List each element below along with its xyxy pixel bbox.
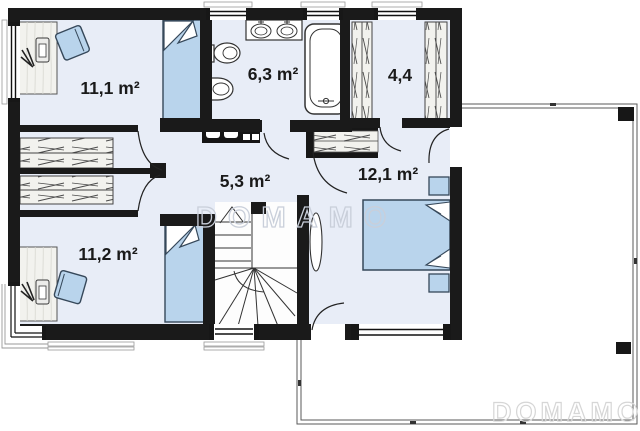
hall-wardrobe-lower xyxy=(20,176,113,204)
room-label-bottom-left: 11,2 m² xyxy=(78,244,138,264)
window-top-2 xyxy=(301,2,345,20)
wall-room1-hall xyxy=(18,125,138,132)
bed-bottom-left xyxy=(165,224,205,322)
window-sill-room2 xyxy=(48,342,134,350)
wall-room2-hall xyxy=(18,210,138,217)
wall-bathroom-closet xyxy=(340,20,350,128)
wall-bathroom-south-left xyxy=(200,120,262,132)
hall-wardrobe-upper xyxy=(20,138,113,168)
wall-closet-south-left xyxy=(340,118,380,128)
closet-rack-left xyxy=(352,22,372,120)
window-bottom-stairs xyxy=(204,324,264,350)
floor-plan: DOMAMO DOMAMO 11,1 m² 6,3 m² 4,4 5,3 m² … xyxy=(0,0,640,431)
terrace-door-gap-south xyxy=(311,324,345,340)
wall-hall-divider xyxy=(18,168,152,174)
terrace-door-gap-east xyxy=(450,127,462,167)
wall-right xyxy=(450,8,462,340)
window-top-1 xyxy=(204,2,252,20)
watermark-center: DOMAMO xyxy=(196,202,397,234)
floor-plan-drawing: DOMAMO DOMAMO 11,1 m² 6,3 m² 4,4 5,3 m² … xyxy=(0,0,640,431)
wall-room1-bathroom xyxy=(200,20,212,132)
wall-closet-south-right xyxy=(402,118,450,128)
room-label-bathroom: 6,3 m² xyxy=(248,64,299,84)
terrace-post-top xyxy=(618,107,634,121)
desk-chair-bottom-left xyxy=(36,280,49,304)
bed-top-left xyxy=(163,20,202,122)
desk-chair-top-left xyxy=(36,38,49,62)
closet-rack-right xyxy=(425,22,447,120)
watermark-corner: DOMAMO xyxy=(492,397,640,427)
window-bedroom-south xyxy=(351,324,451,340)
terrace-post-bottom xyxy=(616,342,631,354)
window-top-3 xyxy=(372,2,422,20)
window-left-upper xyxy=(2,20,20,104)
room-label-hallway: 5,3 m² xyxy=(220,171,271,191)
room-label-closet: 4,4 xyxy=(388,65,413,85)
nightstand-top xyxy=(429,177,449,195)
room-label-top-left: 11,1 m² xyxy=(80,78,140,98)
room-label-bedroom: 12,1 m² xyxy=(358,164,418,184)
nightstand-bottom xyxy=(429,274,449,292)
bathroom-sink-counter xyxy=(246,19,302,40)
